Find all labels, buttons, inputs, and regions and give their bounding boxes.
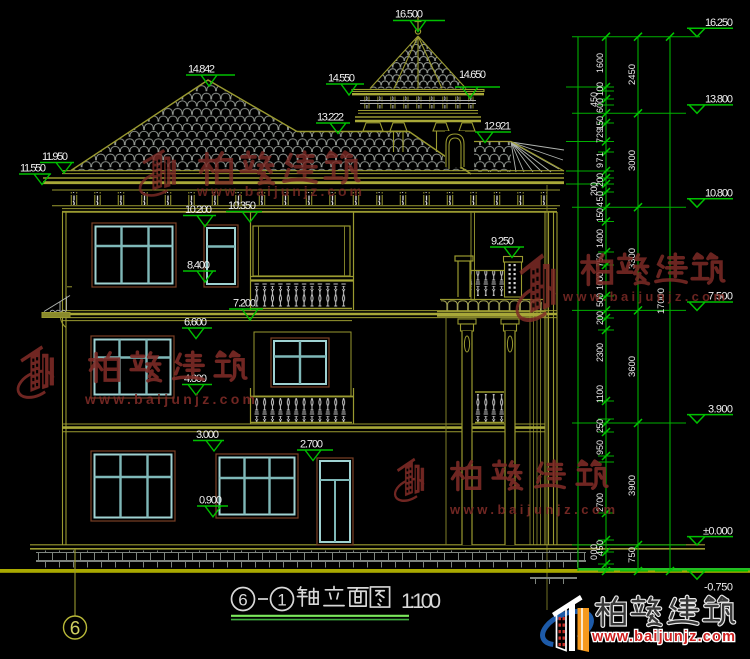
svg-text:150: 150: [595, 116, 605, 130]
svg-text:3600: 3600: [627, 356, 638, 377]
svg-text:11.550: 11.550: [20, 163, 46, 175]
svg-text:6: 6: [238, 591, 247, 610]
svg-text:13.222: 13.222: [317, 112, 344, 124]
svg-text:1:100: 1:100: [401, 590, 441, 613]
svg-text:13.800: 13.800: [705, 94, 733, 106]
svg-text:16.500: 16.500: [395, 9, 423, 21]
svg-text:14.650: 14.650: [459, 69, 486, 81]
svg-text:3900: 3900: [627, 475, 638, 496]
svg-text:729: 729: [595, 128, 605, 143]
svg-text:10.350: 10.350: [228, 200, 256, 212]
svg-text:1600: 1600: [595, 53, 605, 73]
svg-text:14.550: 14.550: [328, 73, 355, 85]
svg-text:1: 1: [277, 591, 286, 610]
svg-text:3.000: 3.000: [196, 429, 219, 441]
svg-text:950: 950: [595, 440, 605, 455]
svg-text:9.250: 9.250: [491, 236, 514, 248]
svg-text:±0.000: ±0.000: [703, 525, 733, 537]
svg-text:6.600: 6.600: [184, 317, 207, 329]
svg-text:10.800: 10.800: [705, 188, 733, 200]
svg-text:16.250: 16.250: [705, 17, 733, 29]
svg-text:2450: 2450: [627, 64, 638, 85]
svg-text:www.baijunjz.com: www.baijunjz.com: [591, 629, 735, 645]
svg-text:-0.750: -0.750: [704, 582, 733, 594]
svg-text:971: 971: [595, 152, 605, 168]
svg-text:0.900: 0.900: [199, 495, 222, 507]
svg-text:6: 6: [70, 619, 81, 640]
svg-text:3.900: 3.900: [708, 403, 733, 415]
svg-text:1100: 1100: [595, 385, 605, 403]
svg-text:200: 200: [595, 311, 605, 325]
svg-text:14.842: 14.842: [188, 64, 215, 76]
svg-text:450: 450: [595, 191, 605, 207]
svg-text:150: 150: [595, 208, 605, 222]
svg-text:600: 600: [595, 98, 605, 113]
svg-text:3000: 3000: [627, 150, 638, 171]
svg-text:7.200: 7.200: [233, 298, 256, 310]
svg-text:11.950: 11.950: [42, 151, 68, 163]
svg-text:1400: 1400: [595, 229, 605, 248]
svg-text:12.921: 12.921: [484, 121, 511, 133]
svg-text:2300: 2300: [595, 343, 605, 362]
svg-text:8.400: 8.400: [187, 260, 210, 272]
svg-text:10.200: 10.200: [185, 204, 212, 216]
svg-text:750: 750: [627, 547, 638, 563]
svg-text:2.700: 2.700: [300, 439, 323, 451]
svg-text:250: 250: [595, 419, 605, 433]
svg-text:000: 000: [589, 544, 599, 560]
